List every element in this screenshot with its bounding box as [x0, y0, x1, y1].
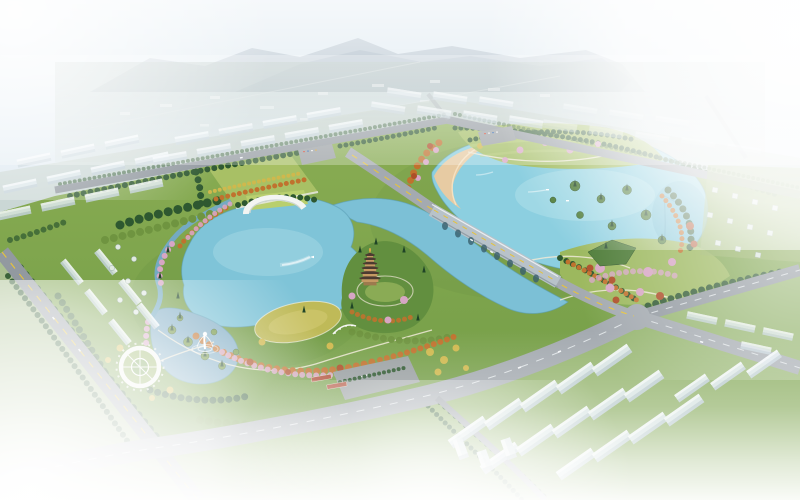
- fog-top-left: [0, 0, 320, 200]
- pagoda-finial: [369, 249, 371, 251]
- aerial-park-rendering: .: [0, 0, 800, 500]
- fog-center-bottom: [220, 380, 640, 500]
- rendering-canvas: .: [0, 0, 800, 500]
- left-lake-highlight: [213, 228, 323, 276]
- fog-right: [580, 120, 800, 380]
